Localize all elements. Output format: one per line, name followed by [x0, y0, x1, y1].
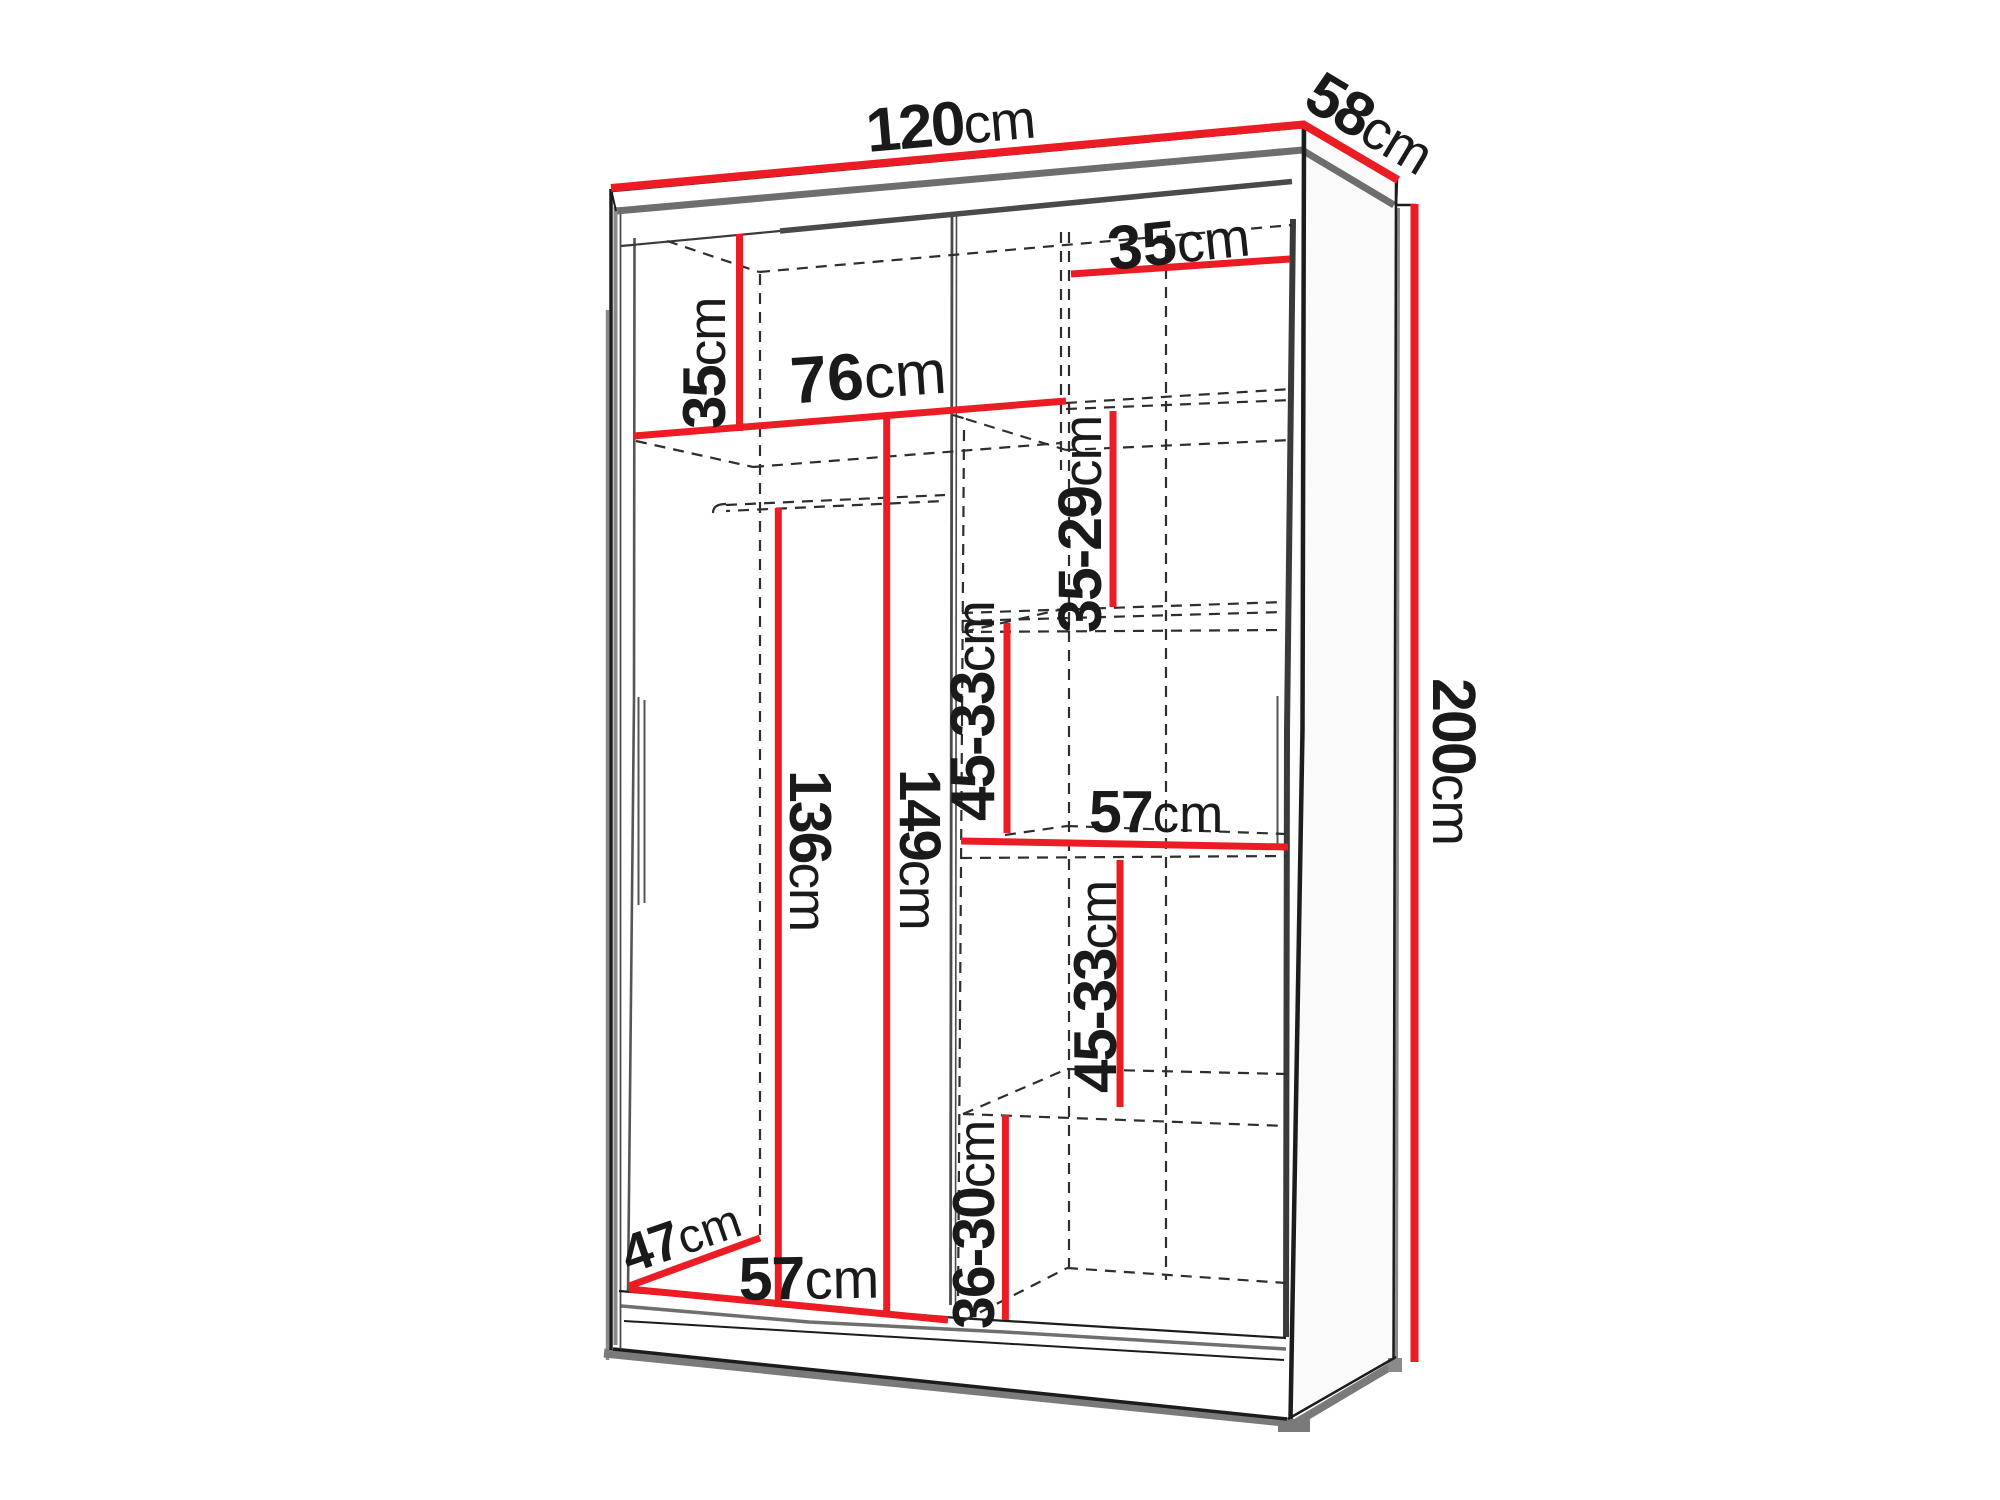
svg-text:45-33cm: 45-33cm	[1062, 881, 1129, 1093]
svg-text:57cm: 57cm	[738, 1243, 880, 1313]
svg-text:35cm: 35cm	[671, 298, 738, 429]
svg-text:200cm: 200cm	[1420, 678, 1488, 845]
svg-text:76cm: 76cm	[788, 333, 949, 418]
svg-text:57cm: 57cm	[1089, 779, 1223, 845]
svg-text:35-29cm: 35-29cm	[1046, 416, 1114, 633]
svg-text:136cm: 136cm	[777, 770, 843, 931]
svg-text:149cm: 149cm	[887, 769, 952, 930]
svg-text:36-30cm: 36-30cm	[941, 1121, 1007, 1329]
